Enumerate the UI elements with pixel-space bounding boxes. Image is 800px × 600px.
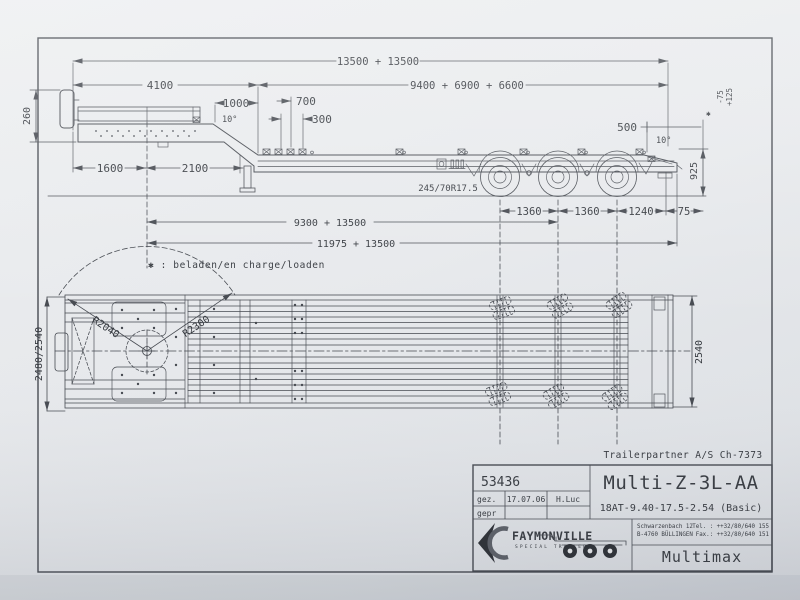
- photo-bottom-shadow: [0, 575, 800, 600]
- dim-width-front: 2480/2540: [34, 327, 45, 381]
- dim-rear-axle-overhang: 1240: [628, 206, 653, 218]
- dim-width-rear: 2540: [694, 340, 705, 364]
- tire-size-label: 245/70R17.5: [418, 184, 478, 194]
- logo-c-icon: [490, 529, 508, 558]
- dim-deck-height: 925: [689, 162, 700, 180]
- model-spec: 18AT-9.40-17.5-2.54 (Basic): [600, 503, 763, 514]
- plan-view: R2040 R2300 2480/2540 2540: [34, 246, 705, 411]
- dim-500: 500: [617, 121, 637, 134]
- drawing-number: 53436: [481, 475, 520, 490]
- title-block: Trailerpartner A/S Ch-7373 53436 gez. 17…: [473, 450, 772, 571]
- axle-projection-lines: [500, 200, 617, 444]
- front-board-plan: [55, 333, 68, 371]
- chassis-profile: [78, 124, 677, 172]
- checked-label: gepr: [477, 509, 496, 518]
- support-leg: [240, 166, 255, 192]
- dim-1000: 1000: [223, 97, 250, 110]
- gooseneck-rail: [78, 107, 200, 121]
- dim-neck-length: 4100: [147, 79, 174, 92]
- model-designation: Multi-Z-3L-AA: [603, 472, 758, 494]
- fax-number: Fax.: ++32/80/640 151: [696, 532, 770, 538]
- neck-deck-dots: [95, 130, 196, 137]
- tolerance-minus: -75: [716, 90, 725, 104]
- drawn-date: 17.07.06: [507, 495, 546, 504]
- side-view-dimensions: 13500 + 13500 4100 9400 + 6900 + 6600 10…: [22, 56, 734, 250]
- wheels-side: [466, 151, 652, 197]
- wheel-axle3: [596, 151, 638, 197]
- customer-reference: Trailerpartner A/S Ch-7373: [603, 450, 762, 461]
- faymonville-logo: FAYMONVILLE SPECIAL TRAILERS: [478, 523, 626, 563]
- front-board: [60, 90, 74, 128]
- radius-outer-label: R2300: [181, 314, 212, 340]
- dim-300: 300: [312, 113, 332, 126]
- plan-outline: [65, 295, 673, 408]
- angle-gooseneck: 10°: [222, 115, 237, 125]
- radius-inner-label: R2040: [90, 315, 121, 341]
- load-marker: ✱: [706, 109, 711, 118]
- address-line1: Schwarzenbach 12: [637, 524, 693, 530]
- load-condition-note: ✱ : beladen/en charge/loaden: [148, 260, 325, 271]
- logo-arrow-icon: [478, 523, 495, 563]
- product-name: Multimax: [662, 548, 742, 566]
- dim-kingpin-to-rear: 11975 + 13500: [317, 239, 395, 250]
- tolerance-plus: +125: [725, 88, 734, 106]
- drawing-sheet: 13500 + 13500 4100 9400 + 6900 + 6600 10…: [0, 0, 800, 600]
- dim-axle-spacing-1: 1360: [516, 206, 541, 218]
- drawn-by: H.Luc: [556, 495, 580, 504]
- dim-700: 700: [296, 95, 316, 108]
- underdeck-fittings: [437, 159, 465, 169]
- dim-2100: 2100: [182, 162, 209, 175]
- wheel-axle1: [479, 151, 521, 197]
- drawn-label: gez.: [477, 495, 496, 504]
- angle-beavertail: 10°: [656, 136, 671, 146]
- dim-1600: 1600: [97, 162, 124, 175]
- dim-kingpin-to-bogie: 9300 + 13500: [294, 218, 366, 229]
- plan-bolt-dots: [121, 304, 303, 400]
- dim-total-length: 13500 + 13500: [337, 56, 419, 68]
- dim-75: 75: [678, 206, 691, 218]
- wheel-axle2: [537, 151, 579, 197]
- dim-board-height: 260: [22, 107, 33, 125]
- phone-number: Tel. : ++32/80/640 155: [692, 524, 769, 530]
- dim-deck-sections: 9400 + 6900 + 6600: [410, 80, 524, 92]
- photographed-technical-drawing: 13500 + 13500 4100 9400 + 6900 + 6600 10…: [0, 0, 800, 600]
- address-line2: B-4760 BÜLLINGEN: [637, 531, 693, 538]
- dim-axle-spacing-2: 1360: [574, 206, 599, 218]
